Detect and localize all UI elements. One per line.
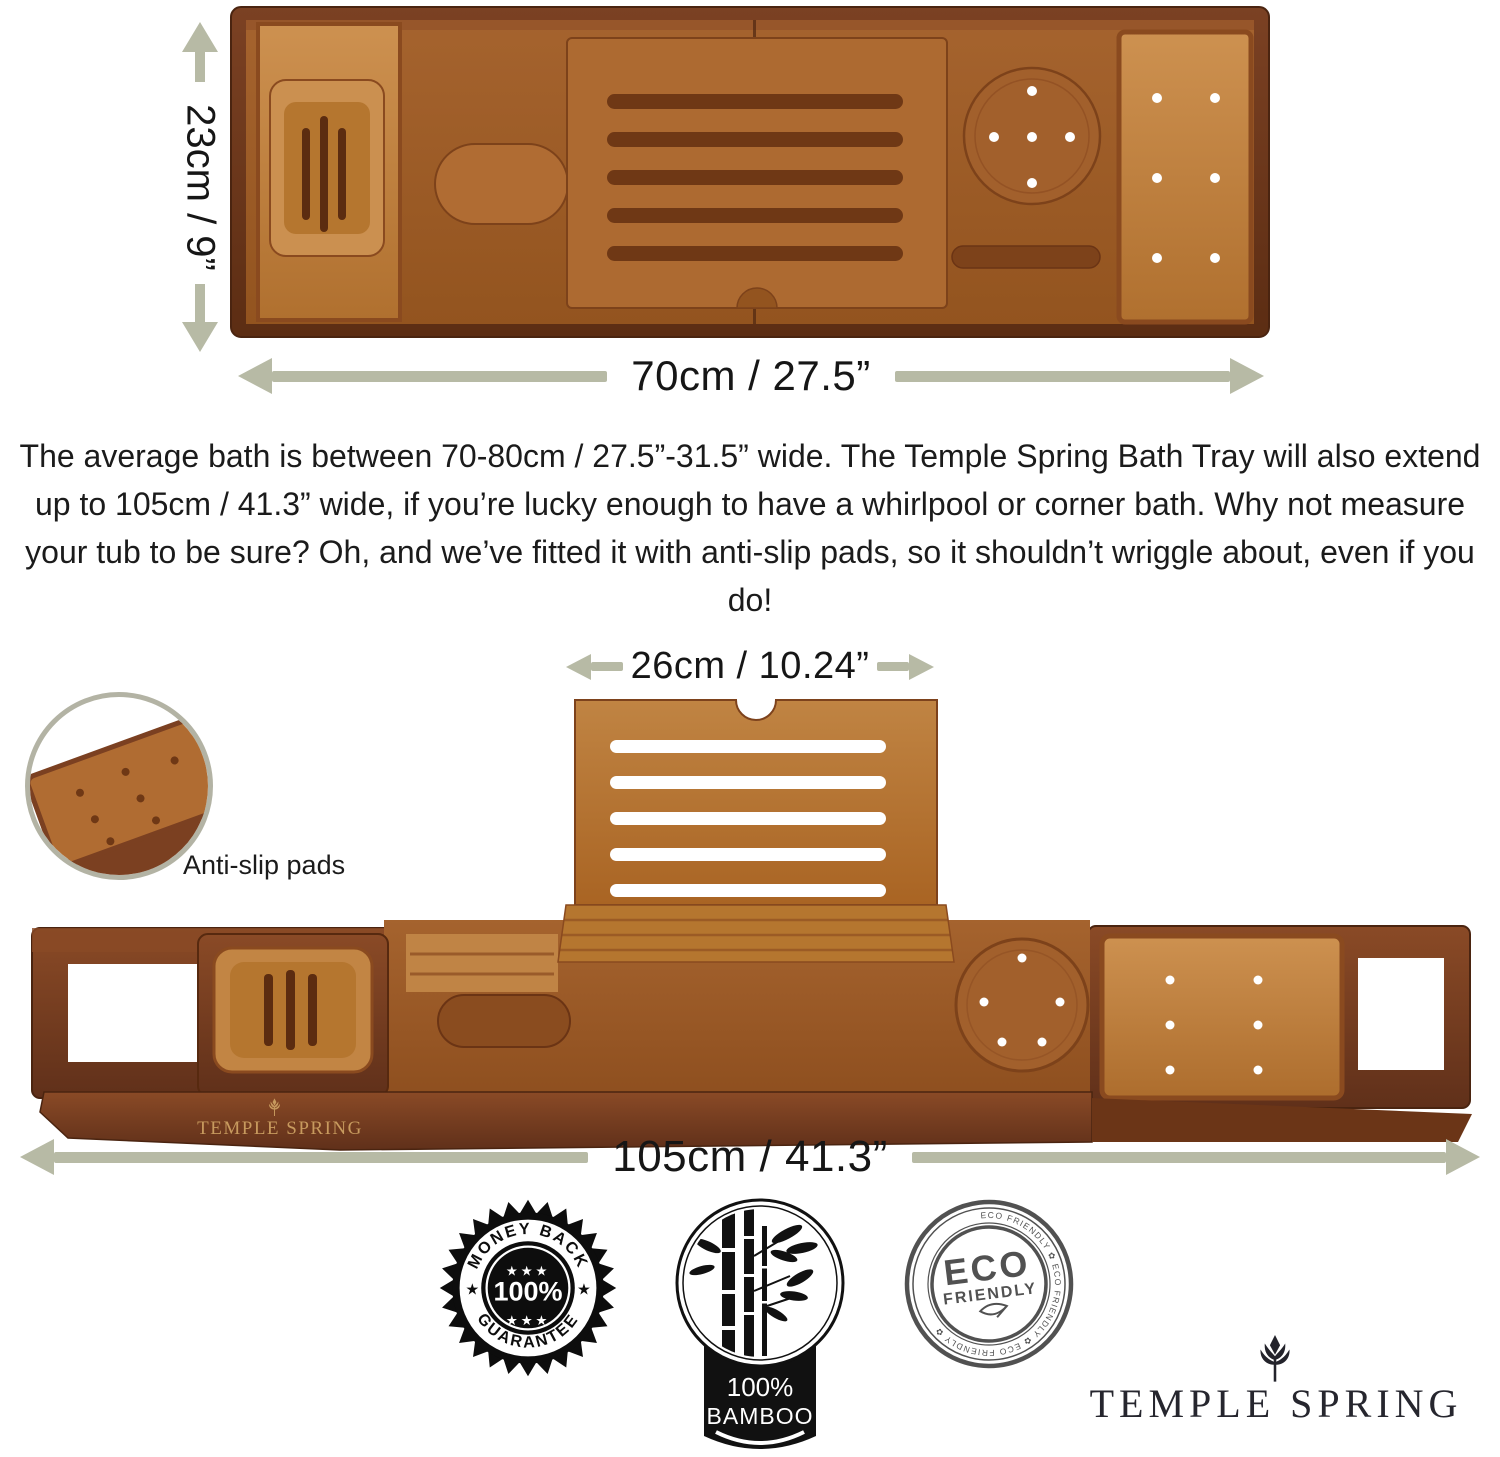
dimension-line xyxy=(877,662,909,671)
dimension-line xyxy=(54,1152,588,1163)
dimension-line xyxy=(912,1152,1446,1163)
dimension-line xyxy=(895,371,1230,382)
right-extension-frame xyxy=(1088,926,1470,1108)
dimension-line xyxy=(272,371,607,382)
bamboo-badge: 100% BAMBOO xyxy=(672,1196,848,1454)
brand-logo: TEMPLE SPRING xyxy=(1086,1334,1466,1438)
arrow-right-icon xyxy=(1230,358,1264,394)
accessory-compartment xyxy=(1119,32,1251,322)
star-icon: ★ xyxy=(577,1281,591,1298)
star-icon: ★ xyxy=(465,1281,479,1298)
height-dimension: 23cm / 9” xyxy=(168,22,232,352)
extended-tray-photo: TEMPLE SPRING xyxy=(10,690,1490,1160)
dimension-line xyxy=(591,662,623,671)
money-back-badge: MONEY BACK GUARANTEE ★ ★ ★★★ 100% ★★★ xyxy=(438,1198,618,1378)
slatted-book-panel xyxy=(567,38,947,308)
product-infographic: 23cm / 9” 70cm / 27.5” The average bath … xyxy=(0,0,1500,1457)
palmette-leaf-icon xyxy=(1258,1334,1292,1382)
arrow-right-icon xyxy=(909,654,934,680)
extended-width-dimension: 105cm / 41.3” xyxy=(20,1132,1480,1182)
height-dimension-label: 23cm / 9” xyxy=(178,68,223,308)
book-stand xyxy=(575,700,937,905)
stand-width-dimension: 26cm / 10.24” xyxy=(535,645,965,688)
anti-slip-detail-illustration xyxy=(30,697,208,875)
wine-glass-holder xyxy=(956,939,1088,1071)
phone-slot-recess xyxy=(435,144,568,224)
leaf-doodle-icon xyxy=(980,1302,1008,1319)
width-dimension: 70cm / 27.5” xyxy=(238,352,1264,400)
eco-friendly-stamp: ECO FRIENDLY ✿ ECO FRIENDLY ✿ ECO FRIEND… xyxy=(901,1196,1077,1372)
arrow-left-icon xyxy=(20,1139,54,1175)
anti-slip-label: Anti-slip pads xyxy=(183,850,345,881)
description-paragraph: The average bath is between 70-80cm / 27… xyxy=(0,432,1500,624)
bamboo-material: BAMBOO xyxy=(707,1403,814,1429)
arrow-right-icon xyxy=(1446,1139,1480,1175)
stars-row: ★★★ xyxy=(506,1313,550,1328)
arrow-left-icon xyxy=(238,358,272,394)
stand-width-label: 26cm / 10.24” xyxy=(623,645,878,688)
extended-width-label: 105cm / 41.3” xyxy=(588,1132,912,1182)
soap-dish-box xyxy=(198,934,388,1096)
brand-logo-text: TEMPLE SPRING xyxy=(1086,1380,1466,1427)
bamboo-percent: 100% xyxy=(727,1372,794,1402)
top-view-tray-photo xyxy=(230,6,1270,338)
phone-slot-recess xyxy=(438,995,570,1047)
arrow-left-icon xyxy=(566,654,591,680)
soap-dish-compartment xyxy=(258,24,400,320)
width-dimension-label: 70cm / 27.5” xyxy=(607,352,894,400)
money-back-percent: 100% xyxy=(493,1277,562,1307)
book-ledge xyxy=(558,905,954,962)
